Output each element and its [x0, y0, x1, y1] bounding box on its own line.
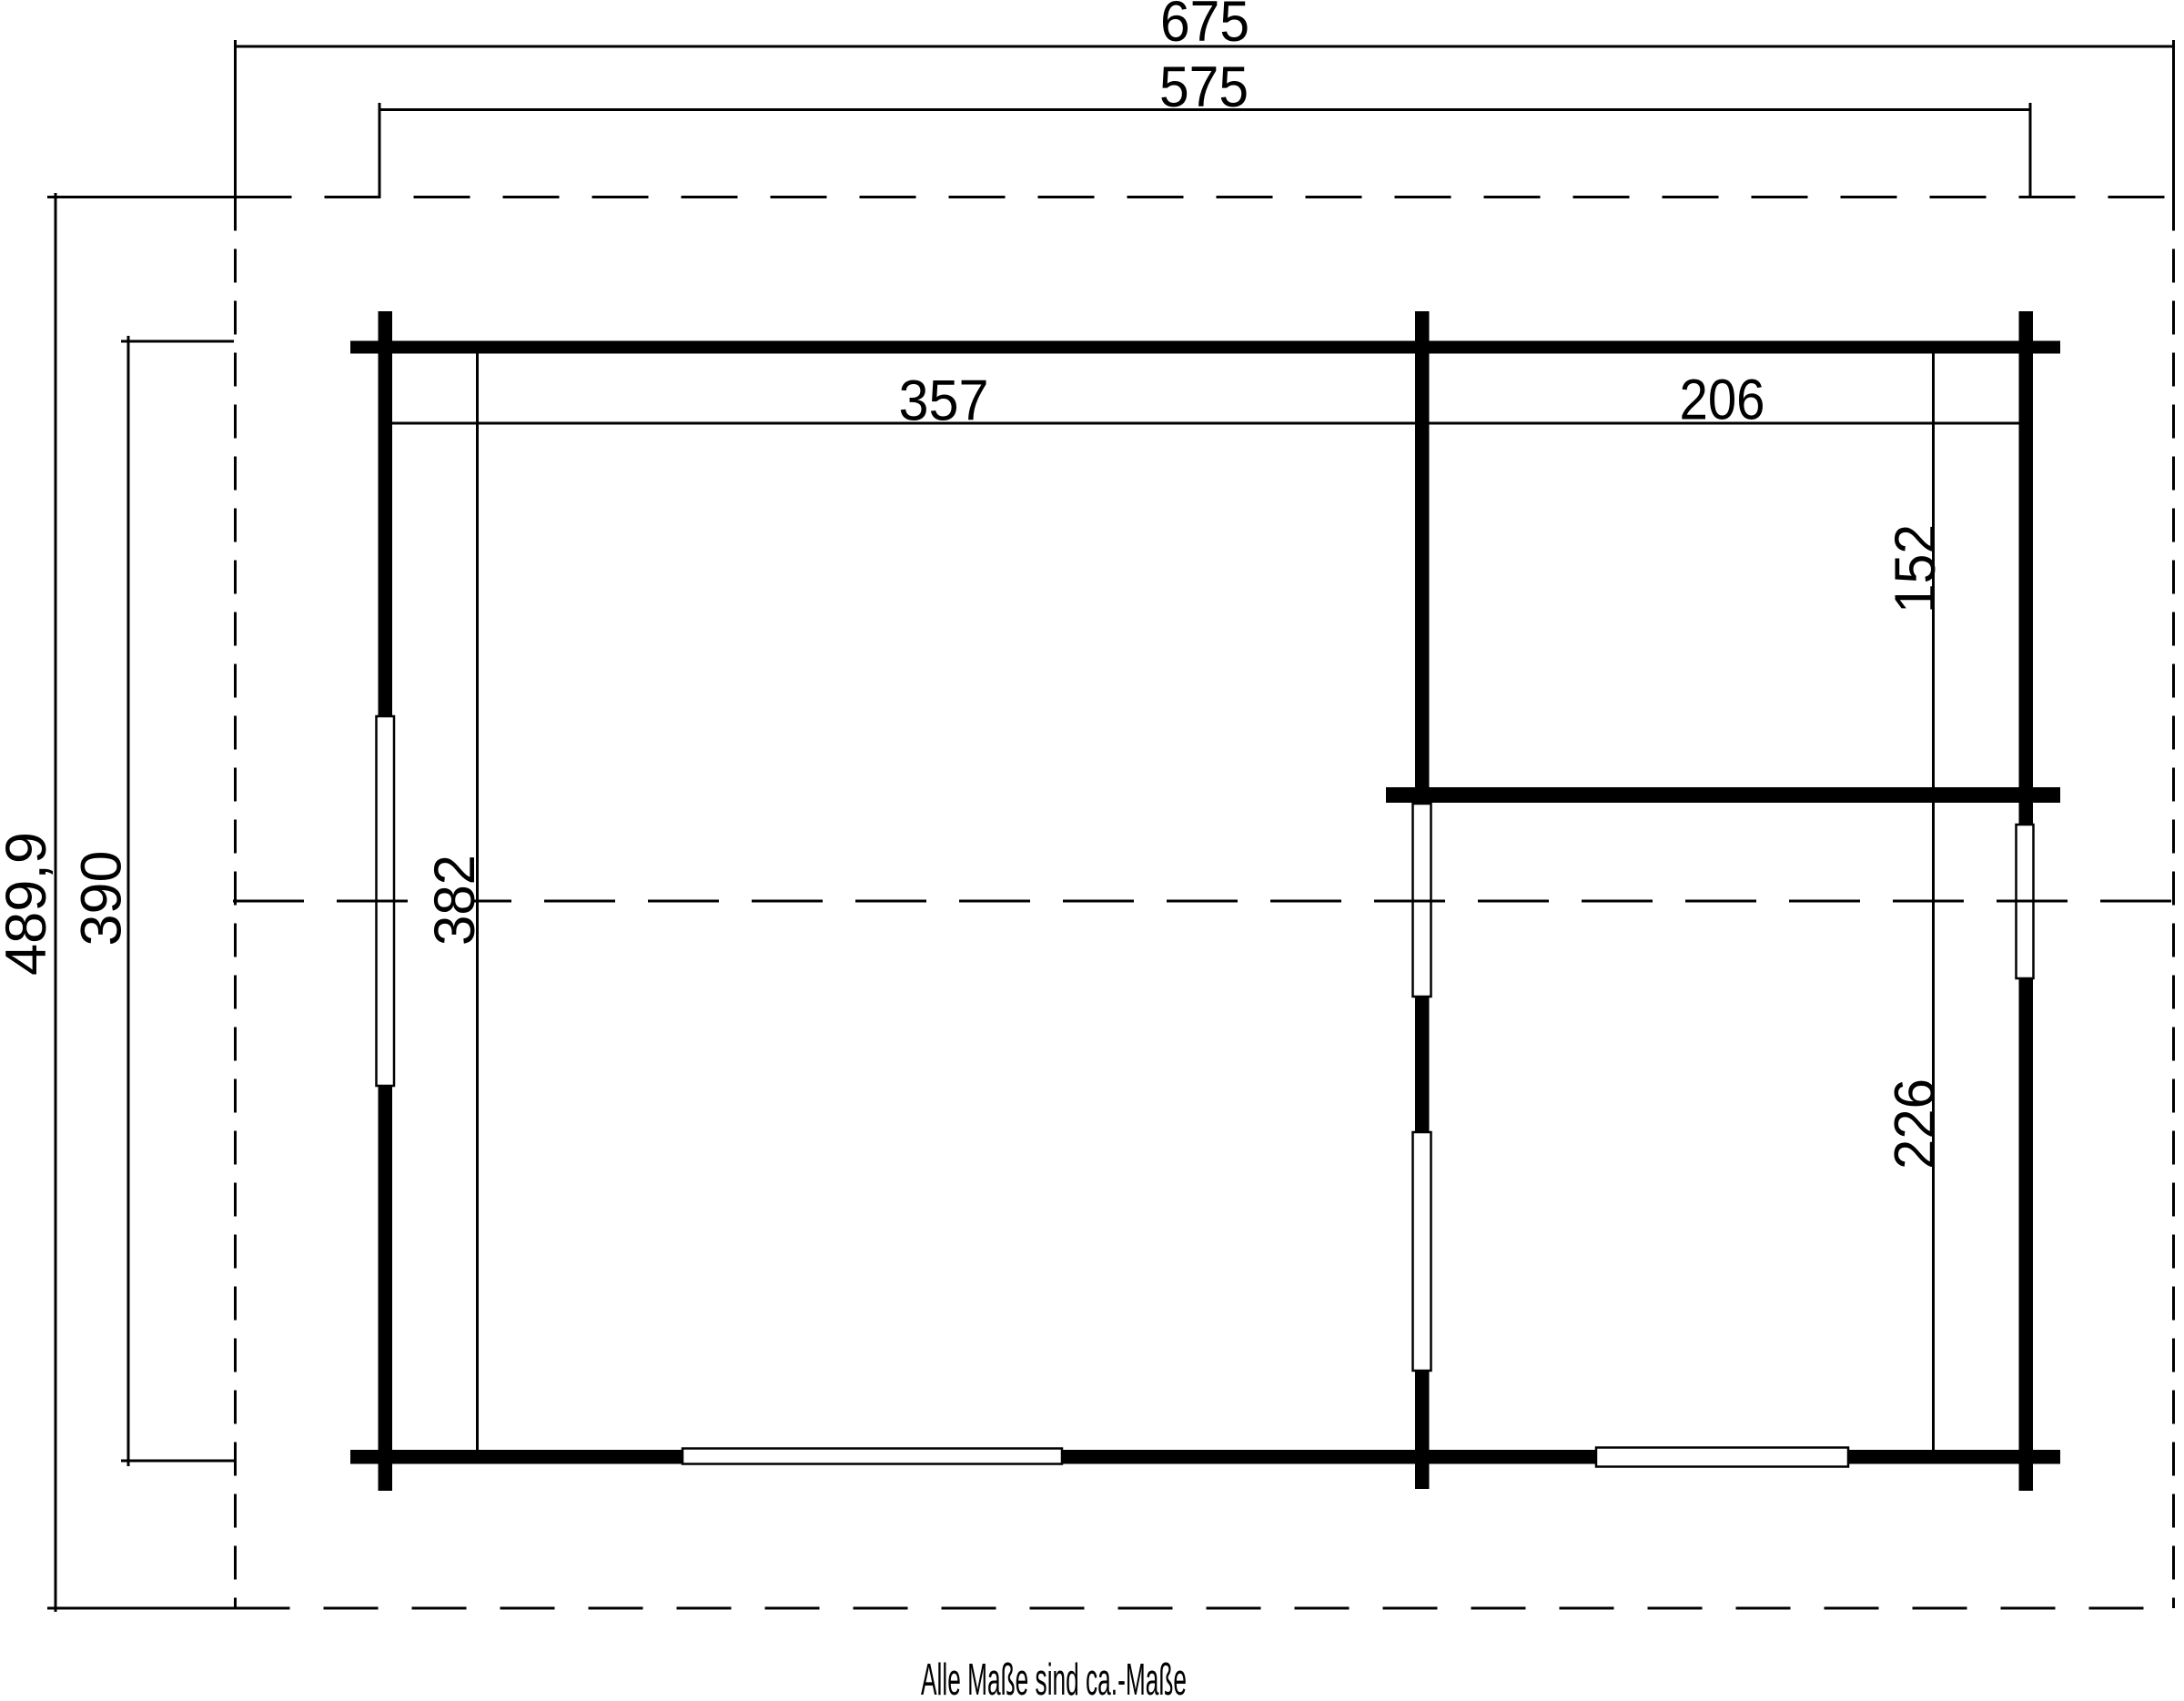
svg-text:575: 575 [1159, 56, 1249, 119]
svg-text:489,9: 489,9 [0, 832, 58, 976]
svg-text:206: 206 [1680, 369, 1765, 432]
svg-text:152: 152 [1884, 524, 1947, 613]
svg-text:382: 382 [423, 855, 487, 946]
svg-text:357: 357 [899, 370, 989, 433]
svg-text:675: 675 [1160, 0, 1249, 54]
svg-text:390: 390 [70, 851, 134, 947]
svg-text:226: 226 [1884, 1078, 1947, 1169]
svg-text:Alle Maße sind ca.-Maße: Alle Maße sind ca.-Maße [921, 1655, 1187, 1701]
